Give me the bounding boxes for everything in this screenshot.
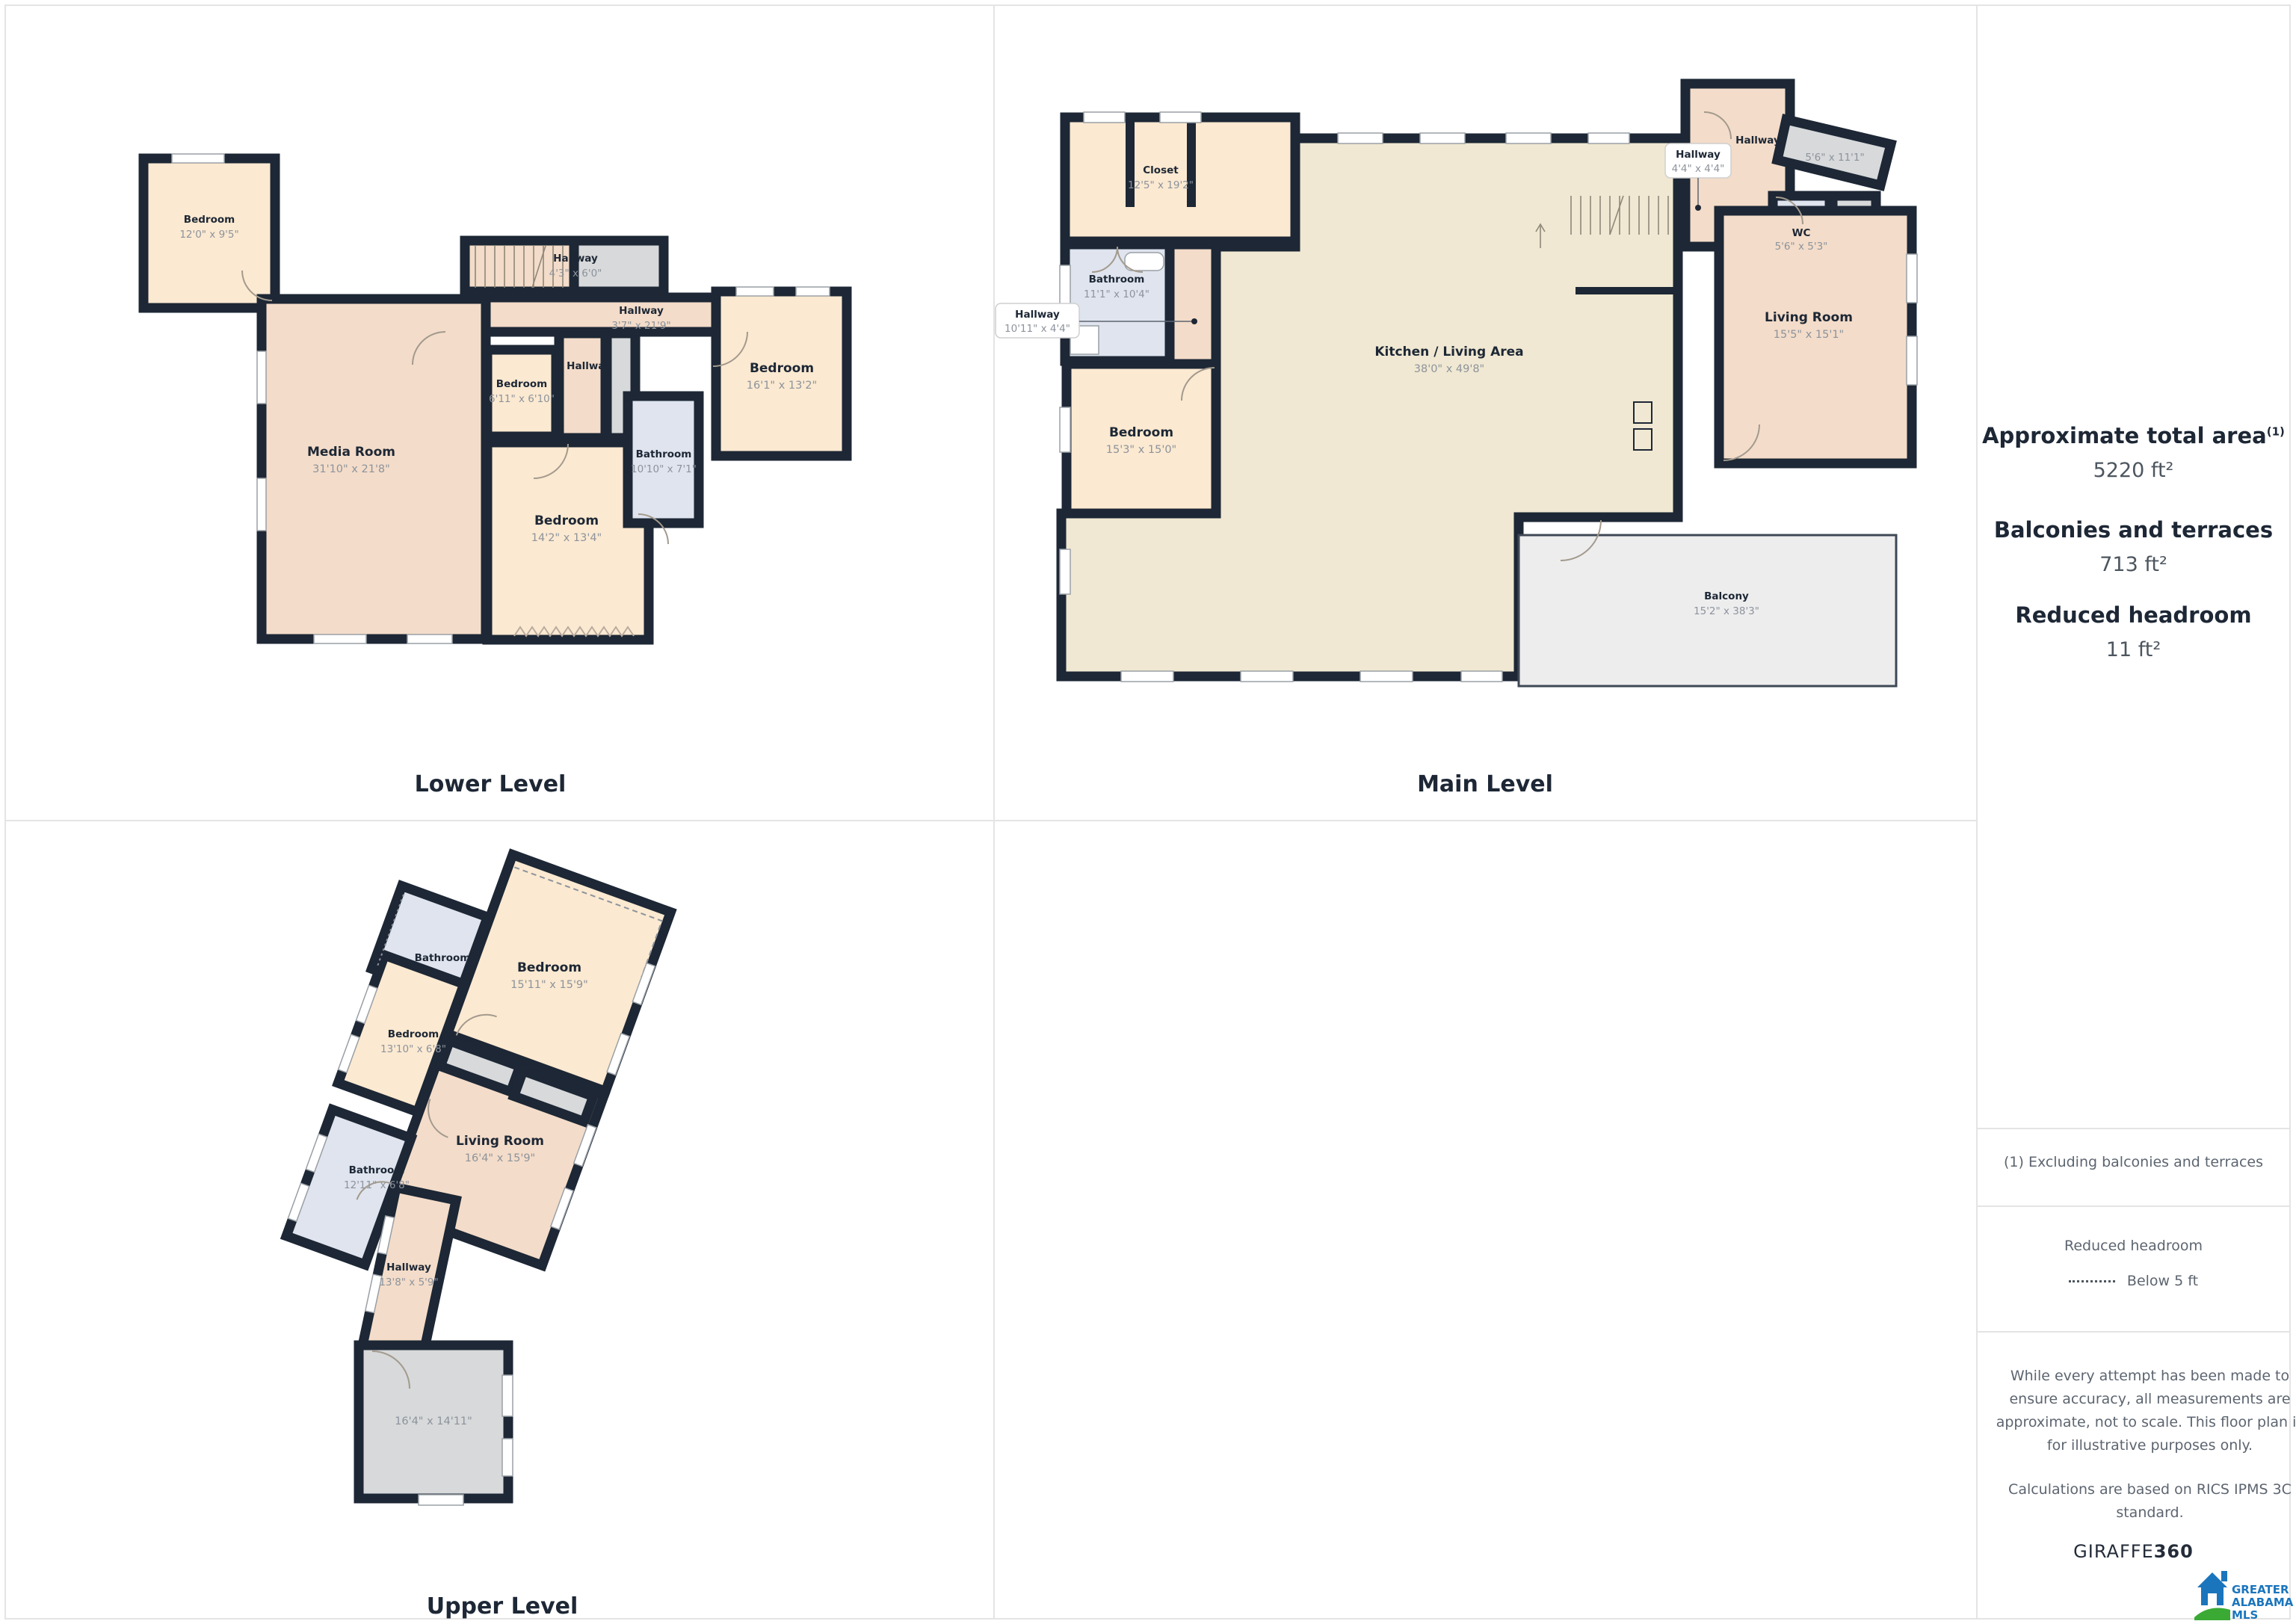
main-bathtub-icon <box>1125 253 1164 271</box>
balconies-title: Balconies and terraces <box>1977 517 2290 543</box>
main-appliance-1 <box>1634 402 1652 423</box>
greater-alabama-mls-logo: GREATER ALABAMA MLS <box>2193 1554 2293 1622</box>
upper-bathroom-top-name: Bathroom <box>415 952 471 964</box>
main-level-caption: Main Level <box>1336 771 1635 797</box>
mls-house-icon <box>2193 1554 2232 1622</box>
lower-bedroom-small-dims: 6'11" x 6'10" <box>489 393 555 405</box>
upper-bedroom-large-name: Bedroom <box>517 960 581 975</box>
main-level-plan: Hallway 10'11" x 4'4" Hallway 4'4" x 4'4… <box>996 84 1917 686</box>
main-kitchen-name: Kitchen / Living Area <box>1374 345 1523 359</box>
lower-hallway-small-name: Hallway <box>567 360 611 372</box>
lower-level-caption: Lower Level <box>341 771 640 797</box>
main-hallway-top-name: Hallway <box>1735 135 1780 146</box>
main-hallway-mid-dims: 4'4" x 4'4" <box>1672 163 1725 175</box>
lower-bedroom-mid-dims: 14'2" x 13'4" <box>531 532 602 544</box>
total-area-footnote-marker: (1) <box>2267 424 2285 438</box>
upper-hallway-dims: 13'8" x 5'9" <box>379 1276 438 1288</box>
lower-bedroom-right-dims: 16'1" x 13'2" <box>747 380 817 392</box>
lower-bathroom-dims: 10'10" x 7'1" <box>631 463 697 475</box>
main-balcony-name: Balcony <box>1704 590 1749 602</box>
main-hallway-mid-name: Hallway <box>1676 149 1721 161</box>
main-hallway-left-name: Hallway <box>1015 309 1060 321</box>
summary-sidebar: Approximate total area(1) 5220 ft² Balco… <box>1977 0 2290 1624</box>
lower-hallway-stairs <box>465 241 574 291</box>
legend-title: Reduced headroom <box>1977 1235 2290 1258</box>
total-area-title: Approximate total area(1) <box>1977 423 2290 448</box>
main-closet-dims: 12'5" x 19'2" <box>1128 179 1194 191</box>
lower-media-room-dims: 31'10" x 21'8" <box>312 463 390 475</box>
mls-text: GREATER ALABAMA MLS <box>2232 1584 2293 1622</box>
dotted-line-icon <box>2069 1280 2115 1282</box>
main-bathroom-name: Bathroom <box>1089 274 1145 285</box>
lower-bedroom-small-name: Bedroom <box>496 378 547 390</box>
total-area-block: Approximate total area(1) 5220 ft² <box>1977 423 2290 482</box>
lower-bedroom-nw-name: Bedroom <box>184 214 235 226</box>
main-bedroom-dims: 15'3" x 15'0" <box>1106 444 1176 456</box>
balconies-block: Balconies and terraces 713 ft² <box>1977 517 2290 576</box>
upper-storage-dims: 16'4" x 14'11" <box>395 1415 472 1427</box>
lower-bedroom-mid-name: Bedroom <box>534 513 599 528</box>
upper-bedroom-small-dims: 13'10" x 6'8" <box>380 1043 446 1055</box>
main-closet-divider-2 <box>1187 117 1196 207</box>
upper-bathroom-dims: 12'11" x 6'8" <box>344 1179 410 1191</box>
floorplan-page: Bedroom 12'0" x 9'5" Hallway 4'3" x 6'0"… <box>0 0 2296 1624</box>
disclaimer-2: Calculations are based on RICS IPMS 3C s… <box>1977 1478 2296 1525</box>
lower-bedroom-right-name: Bedroom <box>750 361 814 376</box>
lower-level-plan: Bedroom 12'0" x 9'5" Hallway 4'3" x 6'0"… <box>143 154 847 643</box>
upper-level-caption: Upper Level <box>353 1593 652 1620</box>
legend-block: Reduced headroom Below 5 ft <box>1977 1235 2290 1293</box>
total-area-value: 5220 ft² <box>1977 459 2290 482</box>
lower-hallway-stairs-dims: 4'3" x 6'0" <box>549 268 602 280</box>
upper-living-room-dims: 16'4" x 15'9" <box>465 1152 535 1164</box>
lower-hallway-main-dims: 3'7" x 21'9" <box>611 320 670 332</box>
reduced-headroom-title: Reduced headroom <box>1977 602 2290 628</box>
upper-bathroom-name: Bathroom <box>349 1164 405 1176</box>
disclaimer-1: While every attempt has been made to ens… <box>1977 1365 2296 1457</box>
lower-hallway-main-name: Hallway <box>619 305 664 317</box>
balconies-value: 713 ft² <box>1977 553 2290 576</box>
main-living-room-dims: 15'5" x 15'1" <box>1774 329 1844 341</box>
main-appliance-2 <box>1634 429 1652 450</box>
legend-item: Below 5 ft <box>1977 1270 2290 1293</box>
main-closet-name: Closet <box>1143 164 1179 176</box>
lower-bedroom-nw-dims: 12'0" x 9'5" <box>179 229 238 241</box>
main-bedroom-name: Bedroom <box>1109 425 1173 440</box>
lower-media-room-name: Media Room <box>307 445 395 460</box>
upper-bedroom-large-dims: 15'11" x 15'9" <box>510 979 588 991</box>
upper-hallway-name: Hallway <box>386 1262 431 1273</box>
main-living-room-name: Living Room <box>1765 310 1853 325</box>
main-wc-name: WC <box>1792 227 1811 239</box>
lower-hallway-small <box>559 333 605 438</box>
main-hallway-left-dims: 10'11" x 4'4" <box>1004 323 1070 335</box>
upper-bedroom-small-name: Bedroom <box>388 1028 439 1040</box>
reduced-headroom-value: 11 ft² <box>1977 638 2290 661</box>
floorplan-drawing: Bedroom 12'0" x 9'5" Hallway 4'3" x 6'0"… <box>0 0 2296 1624</box>
main-kitchen-counter <box>1576 287 1677 294</box>
lower-stairs-landing <box>574 241 664 291</box>
upper-level-plan: Bathroom Bedroom 15'11" x 15'9" Bedroom … <box>276 823 674 1505</box>
lower-hallway-stairs-name: Hallway <box>553 253 598 265</box>
upper-living-room-name: Living Room <box>456 1134 544 1149</box>
main-kitchen-dims: 38'0" x 49'8" <box>1414 363 1484 375</box>
main-corridor <box>1170 244 1216 364</box>
main-balcony-dims: 15'2" x 38'3" <box>1694 605 1759 617</box>
footnote: (1) Excluding balconies and terraces <box>1977 1151 2290 1174</box>
main-wc-dims: 5'6" x 5'3" <box>1775 241 1828 253</box>
main-closet-divider-1 <box>1126 117 1135 207</box>
main-bathroom-dims: 11'1" x 10'4" <box>1084 288 1149 300</box>
reduced-headroom-block: Reduced headroom 11 ft² <box>1977 602 2290 661</box>
lower-bathroom-name: Bathroom <box>636 448 692 460</box>
main-terrace-dims: 5'6" x 11'1" <box>1805 152 1864 164</box>
